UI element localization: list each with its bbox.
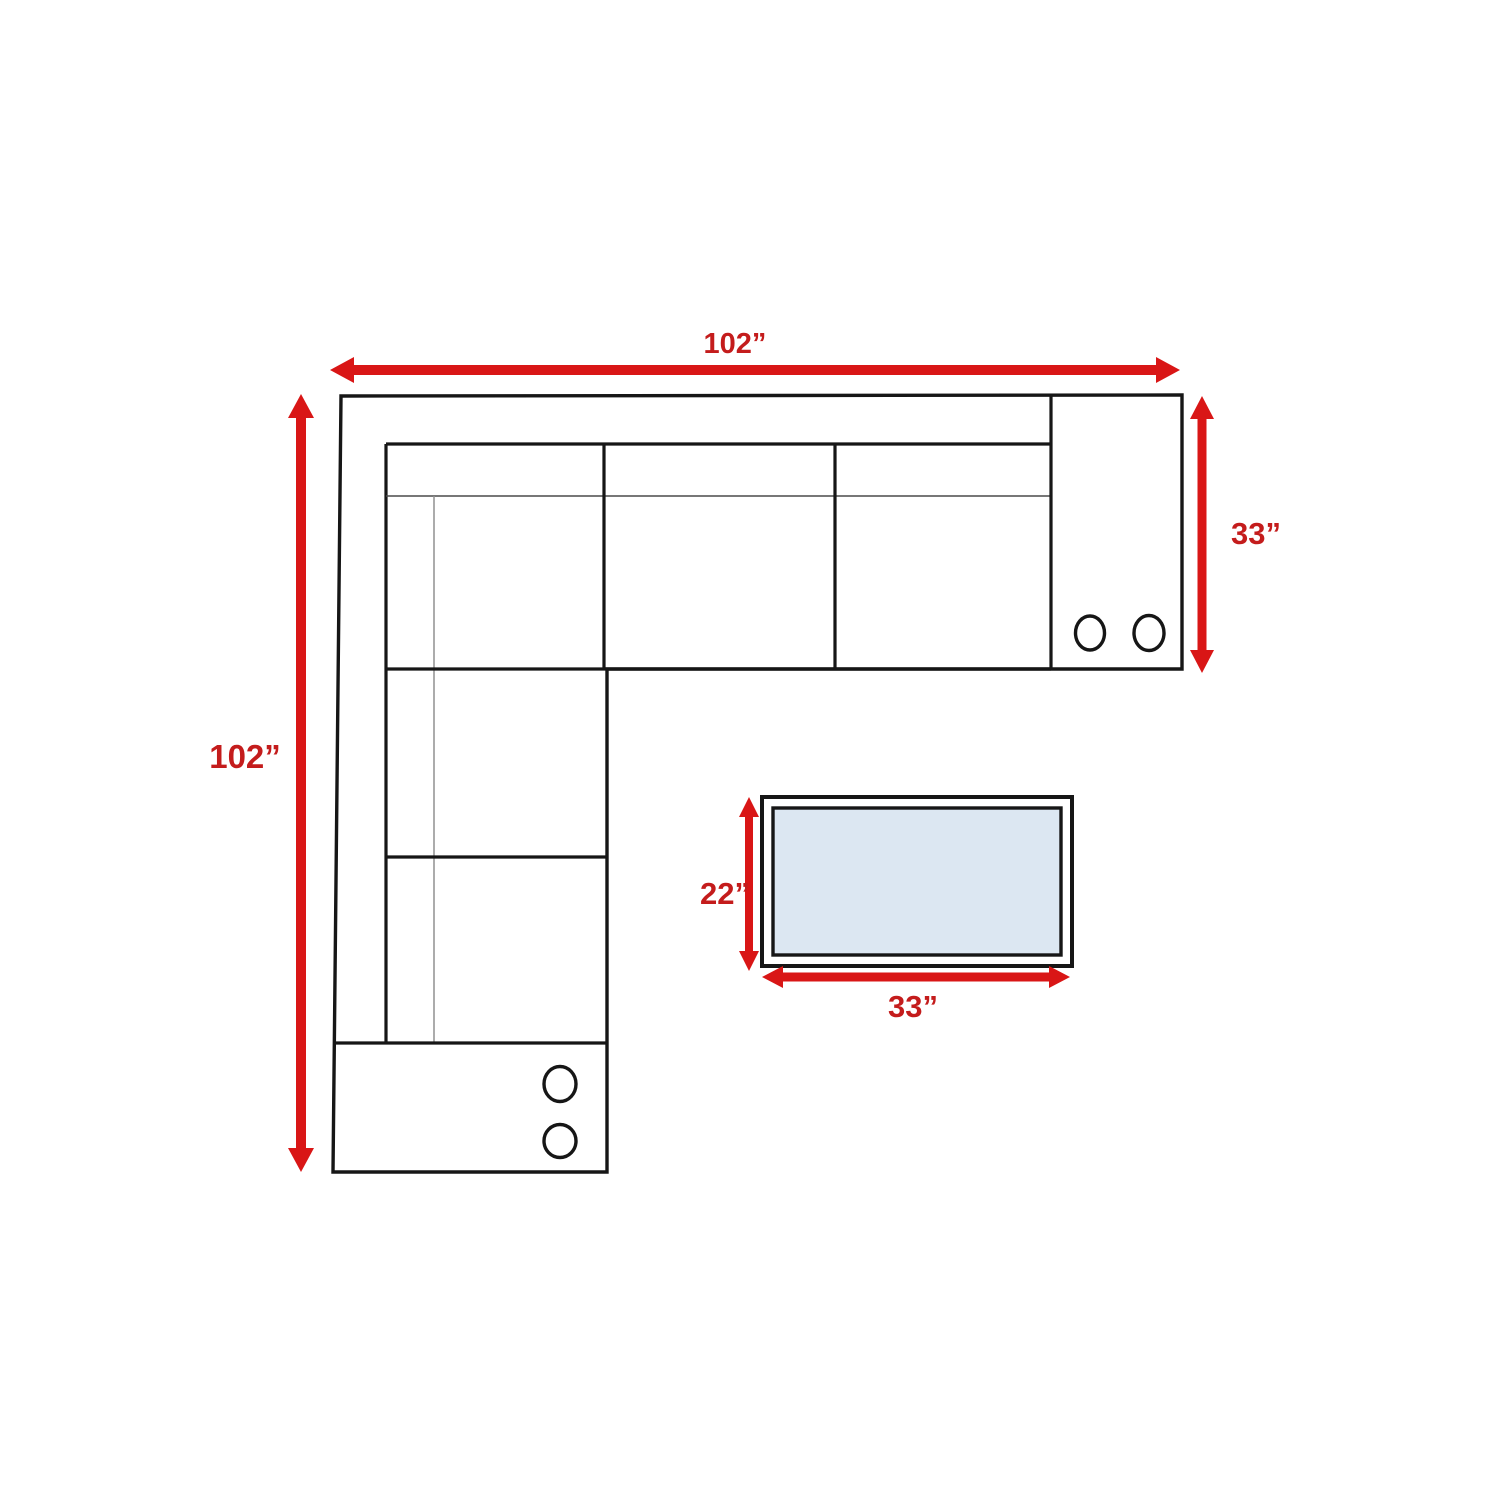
dimension-arrow-table-width	[762, 966, 1070, 988]
sofa-depth-label: 102”	[209, 738, 281, 775]
sectional-sofa-dimension-diagram: 102” 102” 33” 22” 33”	[0, 0, 1500, 1500]
arrowhead-down-icon	[739, 951, 759, 971]
table-width-label: 33”	[888, 989, 938, 1024]
arrowhead-down-icon	[288, 1148, 314, 1172]
arrowhead-right-icon	[1049, 966, 1070, 988]
arrowhead-up-icon	[288, 394, 314, 418]
dimension-arrow-sofa-width	[330, 357, 1180, 383]
arrowhead-left-icon	[330, 357, 354, 383]
arrowhead-up-icon	[739, 797, 759, 817]
coffee-table-top-surface	[773, 808, 1061, 955]
arrowhead-down-icon	[1190, 650, 1214, 673]
cupholder-icon	[544, 1067, 576, 1102]
table-depth-label: 22”	[700, 876, 750, 911]
cupholder-icon	[1076, 616, 1105, 650]
sofa-outer-outline	[333, 395, 1182, 1172]
dimension-arrow-right-depth	[1190, 396, 1214, 673]
dimension-arrow-sofa-depth	[288, 394, 314, 1172]
sofa-width-label: 102”	[704, 328, 767, 360]
arrowhead-up-icon	[1190, 396, 1214, 419]
cupholder-icon	[544, 1125, 576, 1158]
arrowhead-left-icon	[762, 966, 783, 988]
page: { "diagram": { "dimensions": { "sofa_wid…	[0, 0, 1500, 1500]
right-depth-label: 33”	[1231, 516, 1281, 551]
arrowhead-right-icon	[1156, 357, 1180, 383]
cupholder-icon	[1134, 616, 1164, 651]
